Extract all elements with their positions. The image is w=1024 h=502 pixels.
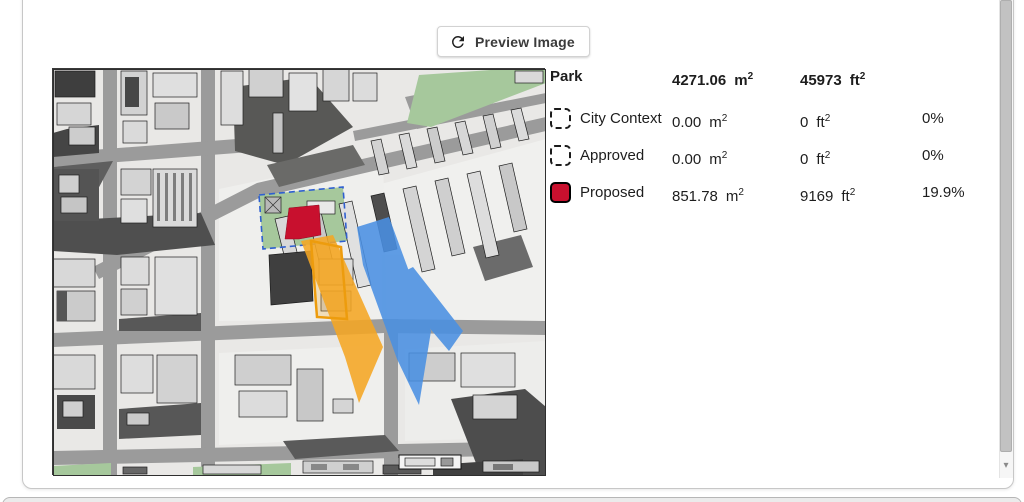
- legend-row-approved: Approved 0.00m2 0ft2 0%: [550, 145, 990, 167]
- legend-header-m2: 4271.06m2: [672, 66, 753, 92]
- legend-row-label: Approved: [580, 145, 644, 167]
- next-section-strip: [2, 497, 1022, 502]
- preview-image-button-label: Preview Image: [475, 34, 575, 50]
- legend-row-m2: 0.00m2: [672, 108, 727, 134]
- legend-row-percent: 0%: [922, 108, 944, 130]
- overlay-proposed-red: [285, 205, 321, 239]
- legend-row-percent: 0%: [922, 145, 944, 167]
- page: Preview Image: [0, 0, 1024, 502]
- map-preview-image: [52, 68, 545, 475]
- legend-row-m2: 851.78m2: [672, 182, 744, 208]
- approved-swatch-icon: [550, 145, 571, 166]
- preview-image-button[interactable]: Preview Image: [437, 26, 590, 57]
- legend-header-ft2: 45973ft2: [800, 66, 865, 92]
- legend-row-label: Proposed: [580, 182, 644, 204]
- proposed-swatch-icon: [550, 182, 571, 203]
- legend-table: Park 4271.06m2 45973ft2 City Context 0.0…: [550, 66, 990, 226]
- legend-row-city-context: City Context 0.00m2 0ft2 0%: [550, 108, 990, 130]
- legend-row-ft2: 0ft2: [800, 145, 830, 171]
- legend-header-row: Park 4271.06m2 45973ft2: [550, 66, 990, 88]
- scrollbar-down-button[interactable]: ▾: [999, 454, 1013, 476]
- refresh-icon: [449, 33, 467, 51]
- city-context-swatch-icon: [550, 108, 571, 129]
- legend-row-percent: 19.9%: [922, 182, 965, 204]
- legend-row-proposed: Proposed 851.78m2 9169ft2 19.9%: [550, 182, 990, 204]
- legend-row-ft2: 9169ft2: [800, 182, 855, 208]
- scrollbar-thumb[interactable]: [1000, 0, 1012, 452]
- legend-header-label: Park: [550, 66, 583, 88]
- legend-row-label: City Context: [580, 108, 662, 130]
- legend-row-m2: 0.00m2: [672, 145, 727, 171]
- scroll-down-arrow-icon: ▾: [1003, 460, 1008, 471]
- legend-row-ft2: 0ft2: [800, 108, 830, 134]
